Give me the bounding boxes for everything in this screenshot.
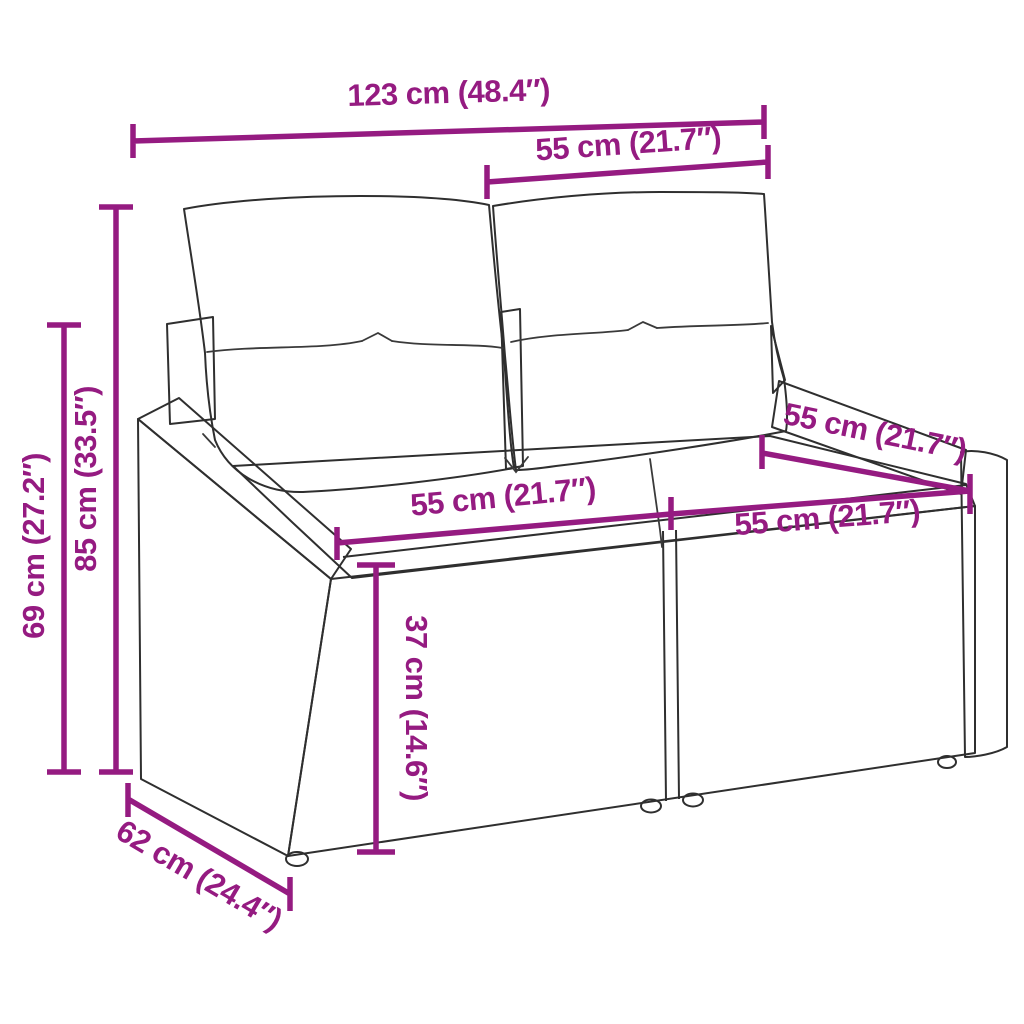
sofa-left-arm-top	[138, 398, 351, 579]
cushion-crease	[207, 341, 362, 352]
dim-label-overall-width: 123 cm (48.4″)	[347, 72, 551, 113]
cushion-crease-fold	[362, 333, 392, 341]
diagram-canvas: 123 cm (48.4″) 55 cm (21.7″) 85 cm (33.5…	[0, 0, 1024, 1024]
sofa-base-front	[288, 506, 975, 856]
cushion-crease	[392, 341, 503, 348]
dim-overall-depth: 62 cm (24.4″)	[110, 783, 290, 937]
dim-overall-height: 85 cm (33.5″)	[68, 207, 133, 772]
dim-seat-height: 37 cm (14.6″)	[357, 565, 434, 852]
dimension-annotations: 123 cm (48.4″) 55 cm (21.7″) 85 cm (33.5…	[16, 72, 970, 937]
sofa-module-seam	[663, 530, 679, 801]
product-dimension-diagram: 123 cm (48.4″) 55 cm (21.7″) 85 cm (33.5…	[0, 0, 1024, 1024]
dim-label-overall-height: 85 cm (33.5″)	[68, 386, 103, 572]
dim-label-arm-height: 69 cm (27.2″)	[16, 453, 51, 639]
sofa-back-cushions	[184, 192, 787, 492]
cushion-crease-fold	[628, 322, 657, 330]
back-cushion-right	[493, 192, 787, 470]
cushion-crease	[511, 330, 628, 342]
dim-label-seat-depth: 55 cm (21.7″)	[781, 396, 970, 467]
sofa-seat-cushion-seam	[650, 459, 662, 547]
cushion-crease	[657, 323, 768, 328]
dim-label-seat-width-right: 55 cm (21.7″)	[733, 493, 921, 542]
dim-label-seat-width-left: 55 cm (21.7″)	[409, 470, 597, 523]
dim-label-seat-height: 37 cm (14.6″)	[399, 615, 434, 801]
sofa-left-arm-face	[138, 419, 331, 856]
